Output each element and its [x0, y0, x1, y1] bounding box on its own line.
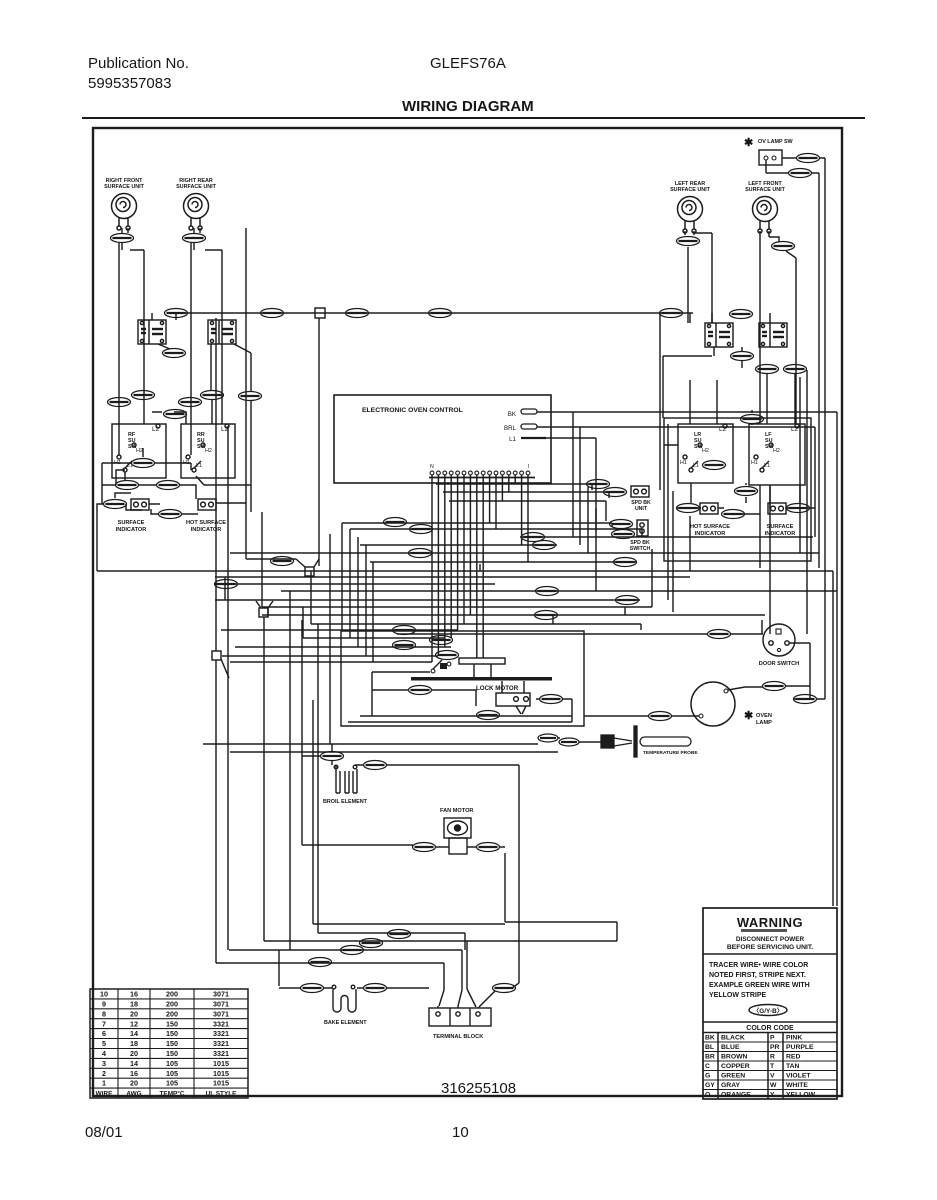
svg-text:3071: 3071	[213, 1000, 229, 1009]
svg-text:SURFACE: SURFACE	[118, 520, 145, 526]
svg-text:SWITCH: SWITCH	[630, 546, 651, 552]
svg-text:1015: 1015	[213, 1069, 229, 1078]
svg-text:10: 10	[452, 1124, 469, 1141]
svg-text:2: 2	[102, 1069, 106, 1078]
svg-text:BK: BK	[508, 411, 517, 418]
svg-text:BEFORE SERVICING UNIT.: BEFORE SERVICING UNIT.	[727, 944, 813, 951]
svg-text:BL: BL	[705, 1044, 714, 1051]
svg-text:VIOLET: VIOLET	[786, 1072, 811, 1079]
svg-text:5: 5	[102, 1039, 106, 1048]
svg-text:08/01: 08/01	[85, 1124, 123, 1141]
svg-text:H1: H1	[751, 460, 758, 466]
svg-text:TAN: TAN	[786, 1063, 800, 1070]
svg-text:150: 150	[166, 1019, 178, 1028]
svg-text:L2: L2	[152, 426, 160, 433]
svg-text:105: 105	[166, 1069, 178, 1078]
svg-text:316255108: 316255108	[441, 1080, 516, 1097]
svg-text:OVEN: OVEN	[756, 713, 772, 719]
svg-text:5995357083: 5995357083	[88, 75, 171, 92]
svg-text:3071: 3071	[213, 990, 229, 999]
svg-text:FAN MOTOR: FAN MOTOR	[440, 808, 473, 814]
svg-text:TRACER WIRE• WIRE COLOR: TRACER WIRE• WIRE COLOR	[709, 962, 808, 969]
svg-text:105: 105	[166, 1059, 178, 1068]
svg-text:3321: 3321	[213, 1039, 229, 1048]
svg-text:INDICATOR: INDICATOR	[695, 531, 726, 537]
svg-text:DISCONNECT POWER: DISCONNECT POWER	[736, 936, 805, 943]
svg-text:WHITE: WHITE	[786, 1082, 808, 1089]
svg-text:H2: H2	[205, 448, 212, 454]
svg-text:3321: 3321	[213, 1029, 229, 1038]
svg-text:L1: L1	[196, 463, 202, 469]
svg-text:OV LAMP SW: OV LAMP SW	[758, 139, 794, 145]
svg-text:20: 20	[130, 1009, 138, 1018]
svg-text:R: R	[770, 1053, 775, 1060]
svg-text:9: 9	[102, 1000, 106, 1009]
svg-text:18: 18	[130, 1000, 138, 1009]
svg-text:3071: 3071	[213, 1009, 229, 1018]
svg-text:1: 1	[102, 1079, 106, 1088]
svg-text:EXAMPLE GREEN WIRE WITH: EXAMPLE GREEN WIRE WITH	[709, 982, 810, 989]
svg-text:16: 16	[130, 1069, 138, 1078]
svg-text:H2: H2	[702, 448, 709, 454]
svg-text:HOT SURFACE: HOT SURFACE	[690, 524, 730, 530]
svg-text:AWG: AWG	[126, 1091, 141, 1098]
svg-text:150: 150	[166, 1039, 178, 1048]
svg-text:TEMP°C: TEMP°C	[160, 1090, 185, 1098]
svg-text:BLUE: BLUE	[721, 1044, 740, 1051]
svg-text:COPPER: COPPER	[721, 1063, 750, 1070]
svg-text:GLEFS76A: GLEFS76A	[430, 55, 506, 72]
svg-text:GREEN: GREEN	[721, 1072, 745, 1079]
svg-text:WIRE: WIRE	[96, 1091, 113, 1098]
svg-text:GRAY: GRAY	[721, 1082, 740, 1089]
svg-text:O: O	[705, 1091, 710, 1098]
svg-text:YELLOW STRIPE: YELLOW STRIPE	[709, 992, 767, 999]
svg-text:3: 3	[102, 1059, 106, 1068]
svg-text:V: V	[770, 1072, 775, 1079]
svg-text:TERMINAL BLOCK: TERMINAL BLOCK	[433, 1034, 483, 1040]
svg-text:200: 200	[166, 1009, 178, 1018]
svg-text:W: W	[770, 1082, 777, 1089]
svg-text:LOCK MOTOR: LOCK MOTOR	[476, 685, 519, 692]
svg-text:〈G/Y-B〉: 〈G/Y-B〉	[753, 1007, 783, 1015]
svg-text:SURFACE UNIT: SURFACE UNIT	[745, 187, 786, 193]
svg-text:T: T	[770, 1063, 775, 1070]
svg-text:14: 14	[130, 1059, 138, 1068]
svg-text:BR: BR	[705, 1053, 715, 1060]
svg-text:20: 20	[130, 1079, 138, 1088]
svg-text:N: N	[430, 464, 434, 470]
svg-text:L1: L1	[509, 436, 516, 443]
svg-text:SURFACE UNIT: SURFACE UNIT	[176, 184, 217, 190]
svg-text:NOTED FIRST, STRIPE NEXT.: NOTED FIRST, STRIPE NEXT.	[709, 972, 806, 979]
svg-text:105: 105	[166, 1079, 178, 1088]
svg-text:PR: PR	[770, 1044, 780, 1051]
svg-text:4: 4	[102, 1049, 106, 1058]
svg-text:PINK: PINK	[786, 1034, 802, 1041]
svg-text:PURPLE: PURPLE	[786, 1044, 814, 1051]
svg-text:3321: 3321	[213, 1049, 229, 1058]
svg-text:BROIL ELEMENT: BROIL ELEMENT	[323, 799, 368, 805]
svg-text:7: 7	[102, 1019, 106, 1028]
svg-text:12: 12	[130, 1019, 138, 1028]
svg-text:SURFACE UNIT: SURFACE UNIT	[670, 187, 711, 193]
svg-text:18: 18	[130, 1039, 138, 1048]
svg-text:H2: H2	[136, 448, 143, 454]
svg-text:BK: BK	[705, 1034, 715, 1041]
svg-text:Y: Y	[770, 1091, 775, 1098]
svg-text:3321: 3321	[213, 1019, 229, 1028]
svg-text:YELLOW: YELLOW	[786, 1091, 816, 1098]
svg-text:DOOR SWITCH: DOOR SWITCH	[759, 661, 799, 667]
svg-text:INDICATOR: INDICATOR	[116, 527, 147, 533]
svg-text:BAKE ELEMENT: BAKE ELEMENT	[324, 1020, 367, 1026]
svg-text:16: 16	[130, 990, 138, 999]
svg-text:I: I	[528, 464, 529, 470]
svg-text:UNIT: UNIT	[635, 506, 648, 512]
svg-text:H1: H1	[680, 460, 687, 466]
svg-text:L1: L1	[764, 463, 770, 469]
svg-text:HOT SURFACE: HOT SURFACE	[186, 520, 226, 526]
svg-text:BLACK: BLACK	[721, 1034, 745, 1041]
svg-text:ELECTRONIC OVEN CONTROL: ELECTRONIC OVEN CONTROL	[362, 407, 463, 414]
svg-text:WARNING: WARNING	[737, 915, 803, 930]
svg-text:200: 200	[166, 990, 178, 999]
svg-text:G: G	[705, 1072, 710, 1079]
svg-text:10: 10	[100, 990, 108, 999]
svg-text:200: 200	[166, 1000, 178, 1009]
svg-text:1015: 1015	[213, 1059, 229, 1068]
svg-text:H2: H2	[773, 448, 780, 454]
svg-text:P: P	[770, 1034, 775, 1041]
svg-text:TEMPERATURE PROBE: TEMPERATURE PROBE	[643, 750, 698, 756]
svg-text:COLOR CODE: COLOR CODE	[746, 1025, 794, 1032]
svg-text:BROWN: BROWN	[721, 1053, 748, 1060]
svg-text:ORANGE: ORANGE	[721, 1091, 751, 1098]
svg-text:C: C	[705, 1063, 710, 1070]
svg-text:L1: L1	[693, 463, 699, 469]
svg-text:Publication No.: Publication No.	[88, 55, 189, 72]
svg-text:20: 20	[130, 1049, 138, 1058]
svg-text:GY: GY	[705, 1082, 715, 1089]
svg-text:WIRING DIAGRAM: WIRING DIAGRAM	[402, 98, 534, 115]
svg-text:8: 8	[102, 1009, 106, 1018]
svg-text:LAMP: LAMP	[756, 720, 772, 726]
svg-text:UL STYLE: UL STYLE	[206, 1091, 238, 1098]
svg-text:150: 150	[166, 1029, 178, 1038]
svg-text:SURFACE UNIT: SURFACE UNIT	[104, 184, 145, 190]
svg-text:6: 6	[102, 1029, 106, 1038]
svg-text:RED: RED	[786, 1053, 800, 1060]
svg-text:150: 150	[166, 1049, 178, 1058]
svg-text:14: 14	[130, 1029, 138, 1038]
svg-text:1015: 1015	[213, 1079, 229, 1088]
svg-text:✱: ✱	[744, 137, 753, 149]
svg-text:BRL: BRL	[504, 425, 517, 432]
svg-text:✱: ✱	[744, 710, 753, 722]
